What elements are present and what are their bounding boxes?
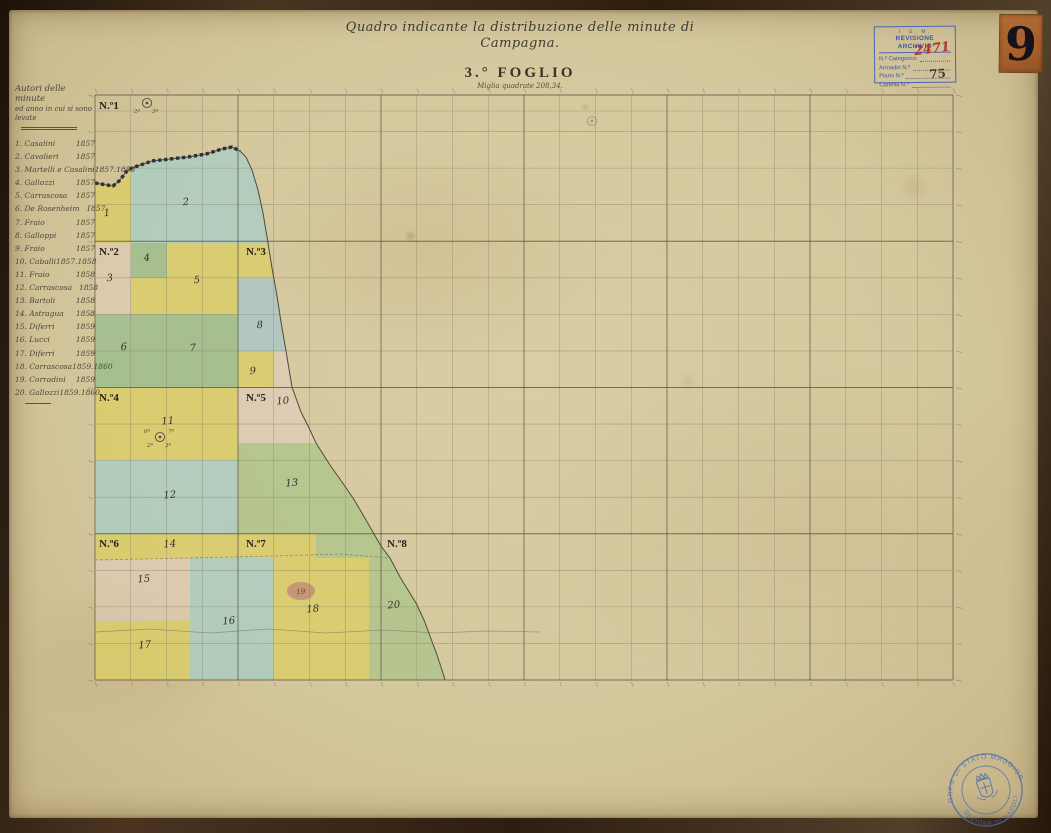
- author-entry: 6. De Rosenheim1857: [15, 202, 95, 215]
- author-entry: 8. Galloppi1857: [15, 229, 95, 242]
- map-title: Quadro indicante la distribuzione delle …: [320, 20, 720, 52]
- authors-list: 1. Casalini18572. Cavalieri18573. Martel…: [15, 137, 95, 399]
- author-entry: 11. Fraio1858: [15, 268, 95, 281]
- corner-number-label: 9: [999, 14, 1044, 74]
- author-entry: 16. Lucci1859: [15, 333, 95, 346]
- title-block: Quadro indicante la distribuzione delle …: [320, 20, 720, 91]
- stamp-cartella-value: 75: [929, 66, 947, 81]
- author-entry: 7. Fraio1857: [15, 216, 95, 229]
- author-entry: 15. Diferri1859: [15, 320, 95, 333]
- square-miles-subtitle: Miglia quadrate 208,34.: [320, 82, 720, 91]
- authors-header-line1: Autori delle minute: [15, 84, 95, 104]
- author-entry: 3. Martelli e Casalini1857.1858: [15, 163, 95, 176]
- sheet-number-heading: 3.° FOGLIO: [320, 65, 720, 81]
- author-entry: 5. Carrascosa1857: [15, 189, 95, 202]
- author-entry: 9. Fraio1857: [15, 242, 95, 255]
- author-entry: 2. Cavalieri1857: [15, 150, 95, 163]
- author-entry: 19. Corradini1859: [15, 373, 95, 386]
- archive-stamp: I. G. M. REVISIONE ARCHIVIO N.º Categori…: [874, 26, 957, 84]
- author-entry: 17. Diferri1859: [15, 347, 95, 360]
- author-entry: 13. Bartoli1858: [15, 294, 95, 307]
- author-entry: 18. Carrascosa1859.1860: [15, 360, 95, 373]
- author-entry: 1. Casalini1857: [15, 137, 95, 150]
- author-entry: 14. Astragua1858: [15, 307, 95, 320]
- map-sheet-paper: [9, 10, 1038, 818]
- seal-crest: [970, 770, 999, 802]
- closing-rule: [25, 403, 51, 405]
- stamp-row: Cartella N.º: [879, 80, 951, 89]
- header-rule: [21, 127, 77, 130]
- author-entry: 12. Carrascosa1858: [15, 281, 95, 294]
- author-entry: 4. Gallozzi1857: [15, 176, 95, 189]
- author-entry: 20. Gallozzi1859.1860: [15, 386, 95, 399]
- author-entry: 10. Caballi1857.1858: [15, 255, 95, 268]
- authors-header-line2: ed anno in cui si sono levate: [15, 105, 95, 123]
- authors-panel: Autori delle minute ed anno in cui si so…: [15, 84, 95, 405]
- scan-dark-border: 1234586791011121314151617182019N.º1N.º2N…: [0, 0, 1051, 833]
